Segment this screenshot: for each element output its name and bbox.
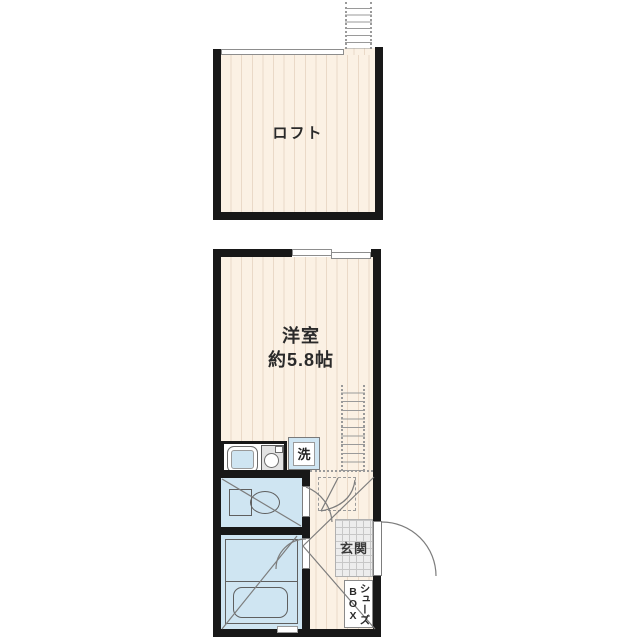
bath-divider (225, 581, 298, 582)
loft-label: ロフト (238, 120, 358, 144)
toilet-tank-icon (229, 489, 252, 516)
wall-toilet-bath (221, 527, 310, 535)
bathroom-door-leaf (302, 538, 310, 569)
loft-ladder-landing (344, 48, 375, 55)
vent (277, 626, 298, 633)
loft-railing (221, 49, 344, 55)
loft-edge-dotted-line (310, 470, 373, 472)
shoebox-label-kana: シューズ (359, 583, 370, 625)
loft-stairs-icon (341, 385, 365, 471)
hall-door-dashed-box (318, 477, 356, 511)
laundry-pan: 洗 (288, 437, 320, 470)
loft-ladder-icon (345, 2, 372, 49)
wall-right-lower (373, 576, 381, 637)
wall-right-upper (373, 249, 381, 521)
toilet-door-leaf (302, 486, 310, 517)
entrance-label: 玄関 (335, 534, 373, 560)
main-room-label: 洋室 約5.8帖 (241, 320, 361, 376)
main-room-name: 洋室 (282, 324, 320, 348)
kitchen-sink-icon (227, 446, 258, 473)
entrance-door-arc (382, 522, 436, 576)
main-room-size: 約5.8帖 (268, 348, 334, 372)
laundry-label: 洗 (293, 442, 315, 466)
bathtub-icon (233, 587, 288, 618)
stove-burner-icon (264, 453, 279, 468)
shoebox-label: BOX シューズ (344, 581, 373, 627)
toilet-bowl-icon (250, 491, 280, 514)
entrance-label-text: 玄関 (340, 538, 368, 557)
entrance-door-leaf (373, 521, 382, 576)
wall-left (213, 249, 221, 637)
laundry-label-text: 洗 (297, 444, 310, 463)
loft-label-text: ロフト (272, 122, 323, 143)
loft-wall-bottom (213, 212, 383, 220)
window-pane-right (331, 252, 371, 259)
loft-wall-right (375, 47, 383, 220)
shoebox-label-latin: BOX (348, 586, 359, 622)
loft-wall-left (213, 49, 221, 220)
window-pane-left (292, 249, 332, 256)
wall-kitchen-toilet (213, 470, 310, 478)
floor-plan: ロフト 洗 玄関 BOX シューズ 洋室 約5.8帖 (0, 0, 640, 640)
stove-control-icon (275, 446, 283, 453)
wall-top-left (213, 249, 292, 257)
